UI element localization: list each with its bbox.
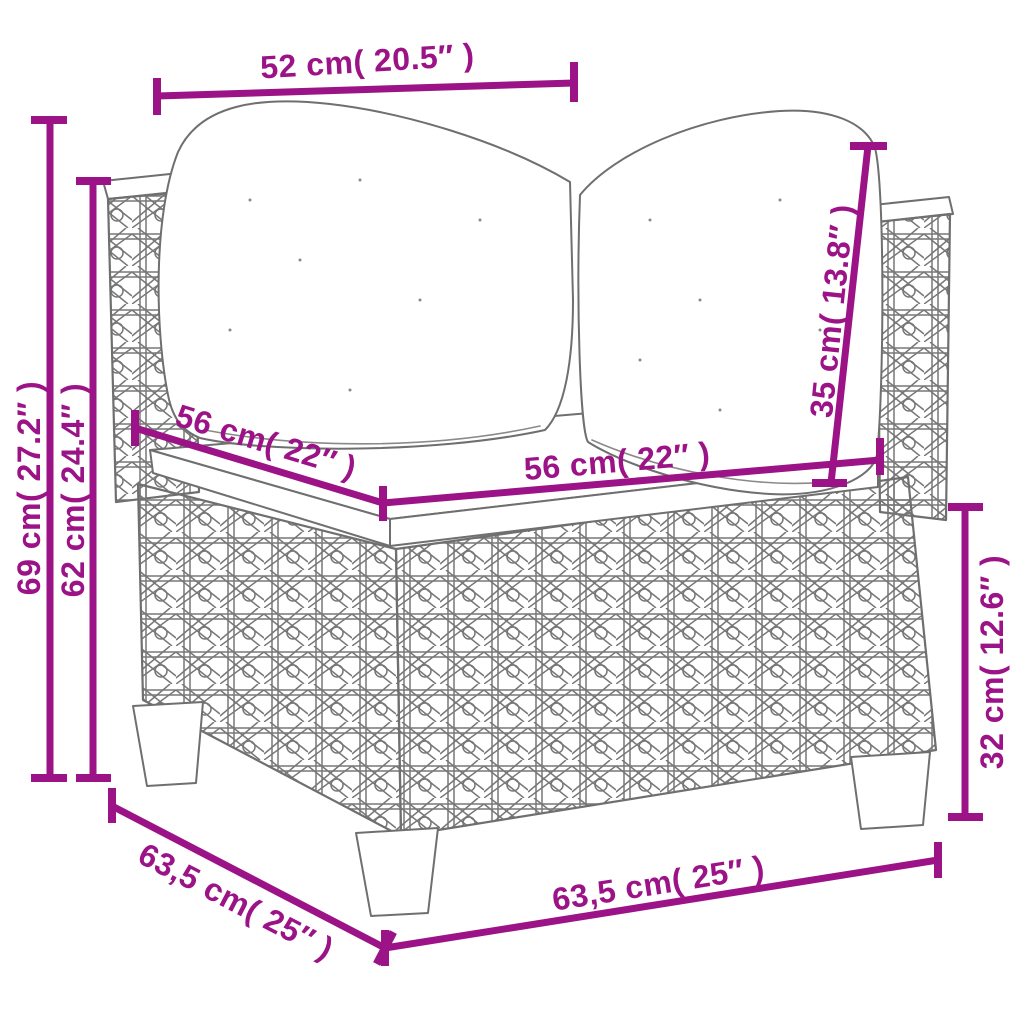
front-left-leg: [133, 702, 203, 786]
dim-base-height-label: 32 cm( 12.6″ ): [974, 555, 1010, 769]
dim-top-width: 52 cm( 20.5″ ): [157, 37, 574, 115]
corner-sofa-dimension-diagram: 52 cm( 20.5″ ) 69 cm( 27.2″ ) 62 cm( 24.…: [0, 0, 1024, 1024]
dim-arm-height: 62 cm( 24.4″ ): [55, 181, 111, 778]
left-back-cushion: [159, 101, 573, 448]
front-center-leg: [356, 828, 438, 916]
dim-bottom-depth: 63,5 cm( 25″ ): [112, 788, 393, 967]
dim-total-height-label: 69 cm( 27.2″ ): [11, 381, 47, 595]
dim-arm-height-label: 62 cm( 24.4″ ): [55, 383, 91, 597]
dim-bottom-width: 63,5 cm( 25″ ): [385, 842, 938, 966]
right-armrest-panel: [877, 214, 950, 520]
dimension-diagram-stage: 52 cm( 20.5″ ) 69 cm( 27.2″ ) 62 cm( 24.…: [0, 0, 1024, 1024]
dim-base-height: 32 cm( 12.6″ ): [948, 507, 1010, 817]
right-leg: [851, 752, 930, 829]
dim-bottom-depth-label: 63,5 cm( 25″ ): [133, 836, 340, 967]
dim-top-width-label: 52 cm( 20.5″ ): [259, 37, 475, 86]
